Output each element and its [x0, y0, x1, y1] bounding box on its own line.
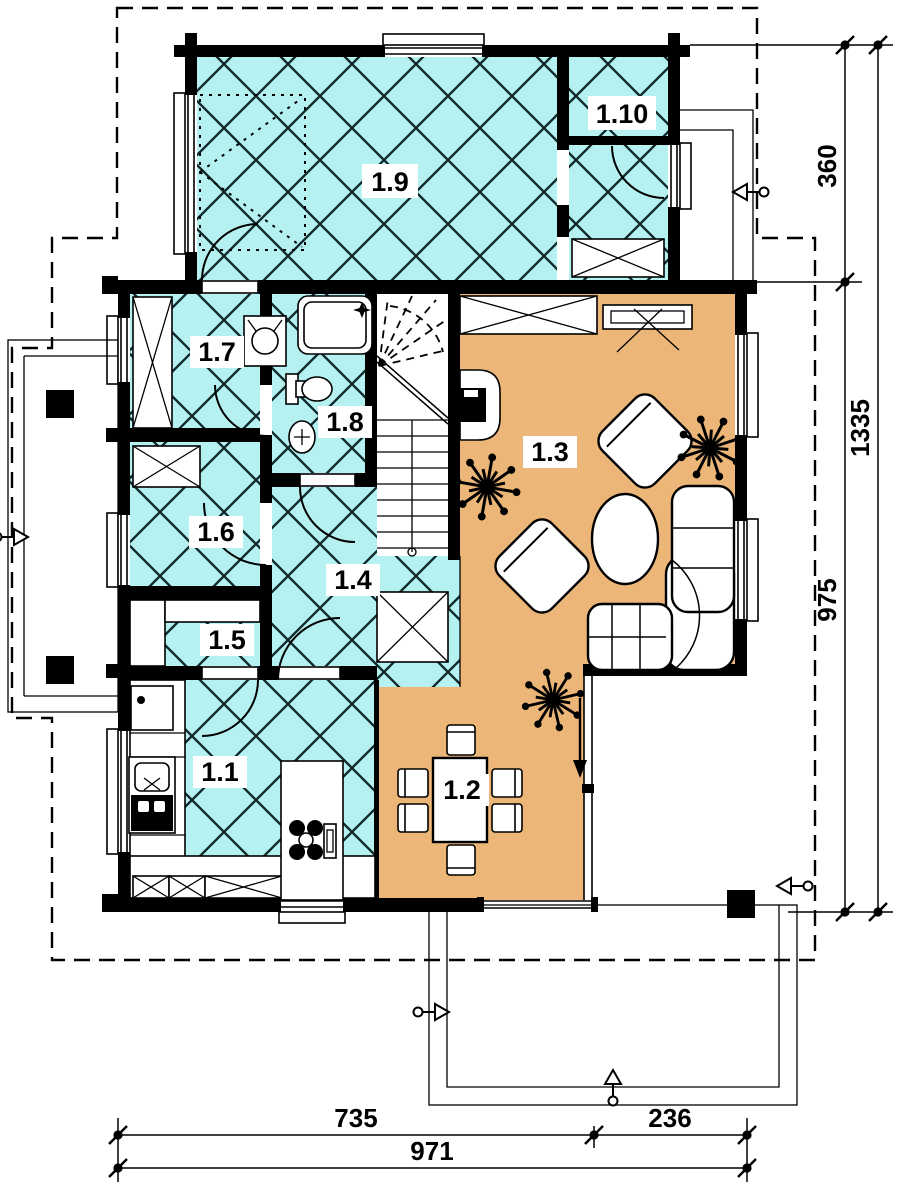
room-label-1-7: 1.7: [190, 336, 244, 368]
room-label-1-9: 1.9: [362, 164, 418, 198]
washbasin-1-7: [244, 316, 286, 366]
dining-chair: [492, 769, 522, 797]
window-right-1: [735, 333, 758, 437]
glass-wall-dining: [582, 676, 594, 900]
room-label-text: 1.3: [531, 437, 569, 467]
dim-text-1335: 1335: [845, 399, 875, 457]
window-left-2: [107, 513, 130, 587]
kitchen-island: [281, 761, 343, 900]
entry-arrow-terrace-east: [777, 878, 813, 894]
washbasin-1-8: [289, 421, 315, 453]
window-right-2: [735, 519, 758, 621]
fridge: [131, 686, 173, 730]
room-label-text: 1.4: [334, 565, 372, 595]
cupboard-1-7: [133, 297, 172, 428]
room-label-text: 1.7: [198, 337, 236, 367]
terrace-column: [46, 390, 74, 418]
room-label-1-8: 1.8: [318, 406, 372, 438]
room-label-text: 1.10: [596, 99, 649, 129]
window-garage: [383, 34, 484, 57]
dim-text-360: 360: [812, 144, 842, 187]
room-label-text: 1.9: [371, 167, 409, 197]
cupboard-1-6: [133, 446, 200, 487]
wardrobe-living: [460, 296, 597, 334]
entry-arrow-1-10: [733, 184, 769, 200]
dining-chair: [447, 845, 475, 875]
room-label-text: 1.1: [201, 757, 239, 787]
fireplace: [460, 370, 500, 440]
window-left-kitchen: [107, 729, 130, 854]
room-label-1-2: 1.2: [435, 774, 489, 806]
dining-chair: [398, 769, 428, 797]
room-label-text: 1.6: [197, 517, 235, 547]
entry-arrow-terrace-west: [414, 1004, 450, 1020]
terrace-column: [727, 890, 755, 918]
window-bottom-kitchen: [279, 898, 345, 923]
room-label-1-6: 1.6: [189, 516, 243, 548]
dining-chair: [492, 804, 522, 832]
terrace-column: [46, 656, 74, 684]
room-label-1-1: 1.1: [193, 756, 247, 788]
floor-plan-drawing: 1.9 1.10 1.7 1.8 1.6 1.5 1.4 1.3: [0, 0, 900, 1197]
toilet: [286, 374, 332, 404]
dining-chair: [398, 804, 428, 832]
terrace-left: [8, 340, 118, 712]
door-1-10-exterior: [668, 143, 691, 209]
dim-text-236: 236: [648, 1103, 691, 1133]
room-label-1-4: 1.4: [326, 564, 380, 596]
room-label-text: 1.8: [326, 407, 364, 437]
room-label-text: 1.5: [208, 625, 246, 655]
wardrobe-hall: [377, 592, 448, 662]
dim-text-975: 975: [812, 578, 842, 621]
floor-plan-page: 1.9 1.10 1.7 1.8 1.6 1.5 1.4 1.3: [0, 0, 900, 1197]
kitchen-sink: [129, 757, 175, 833]
storage-box-1-10: [572, 239, 664, 277]
room-label-1-3: 1.3: [523, 436, 577, 468]
room-label-1-10: 1.10: [588, 96, 656, 130]
coffee-table: [592, 494, 658, 584]
room-label-1-5: 1.5: [200, 624, 254, 656]
garage-door: [174, 93, 197, 254]
entry-arrow-south: [605, 1070, 621, 1106]
dining-chair: [447, 725, 475, 755]
door-garage-house: [202, 280, 258, 294]
door-1-10-partition: [557, 150, 569, 205]
dim-text-735: 735: [334, 1103, 377, 1133]
window-left-1: [107, 316, 130, 384]
shower: [298, 296, 372, 354]
cooktop-center-burner: [299, 833, 313, 847]
dim-text-971: 971: [410, 1136, 453, 1166]
room-label-text: 1.2: [443, 775, 481, 805]
